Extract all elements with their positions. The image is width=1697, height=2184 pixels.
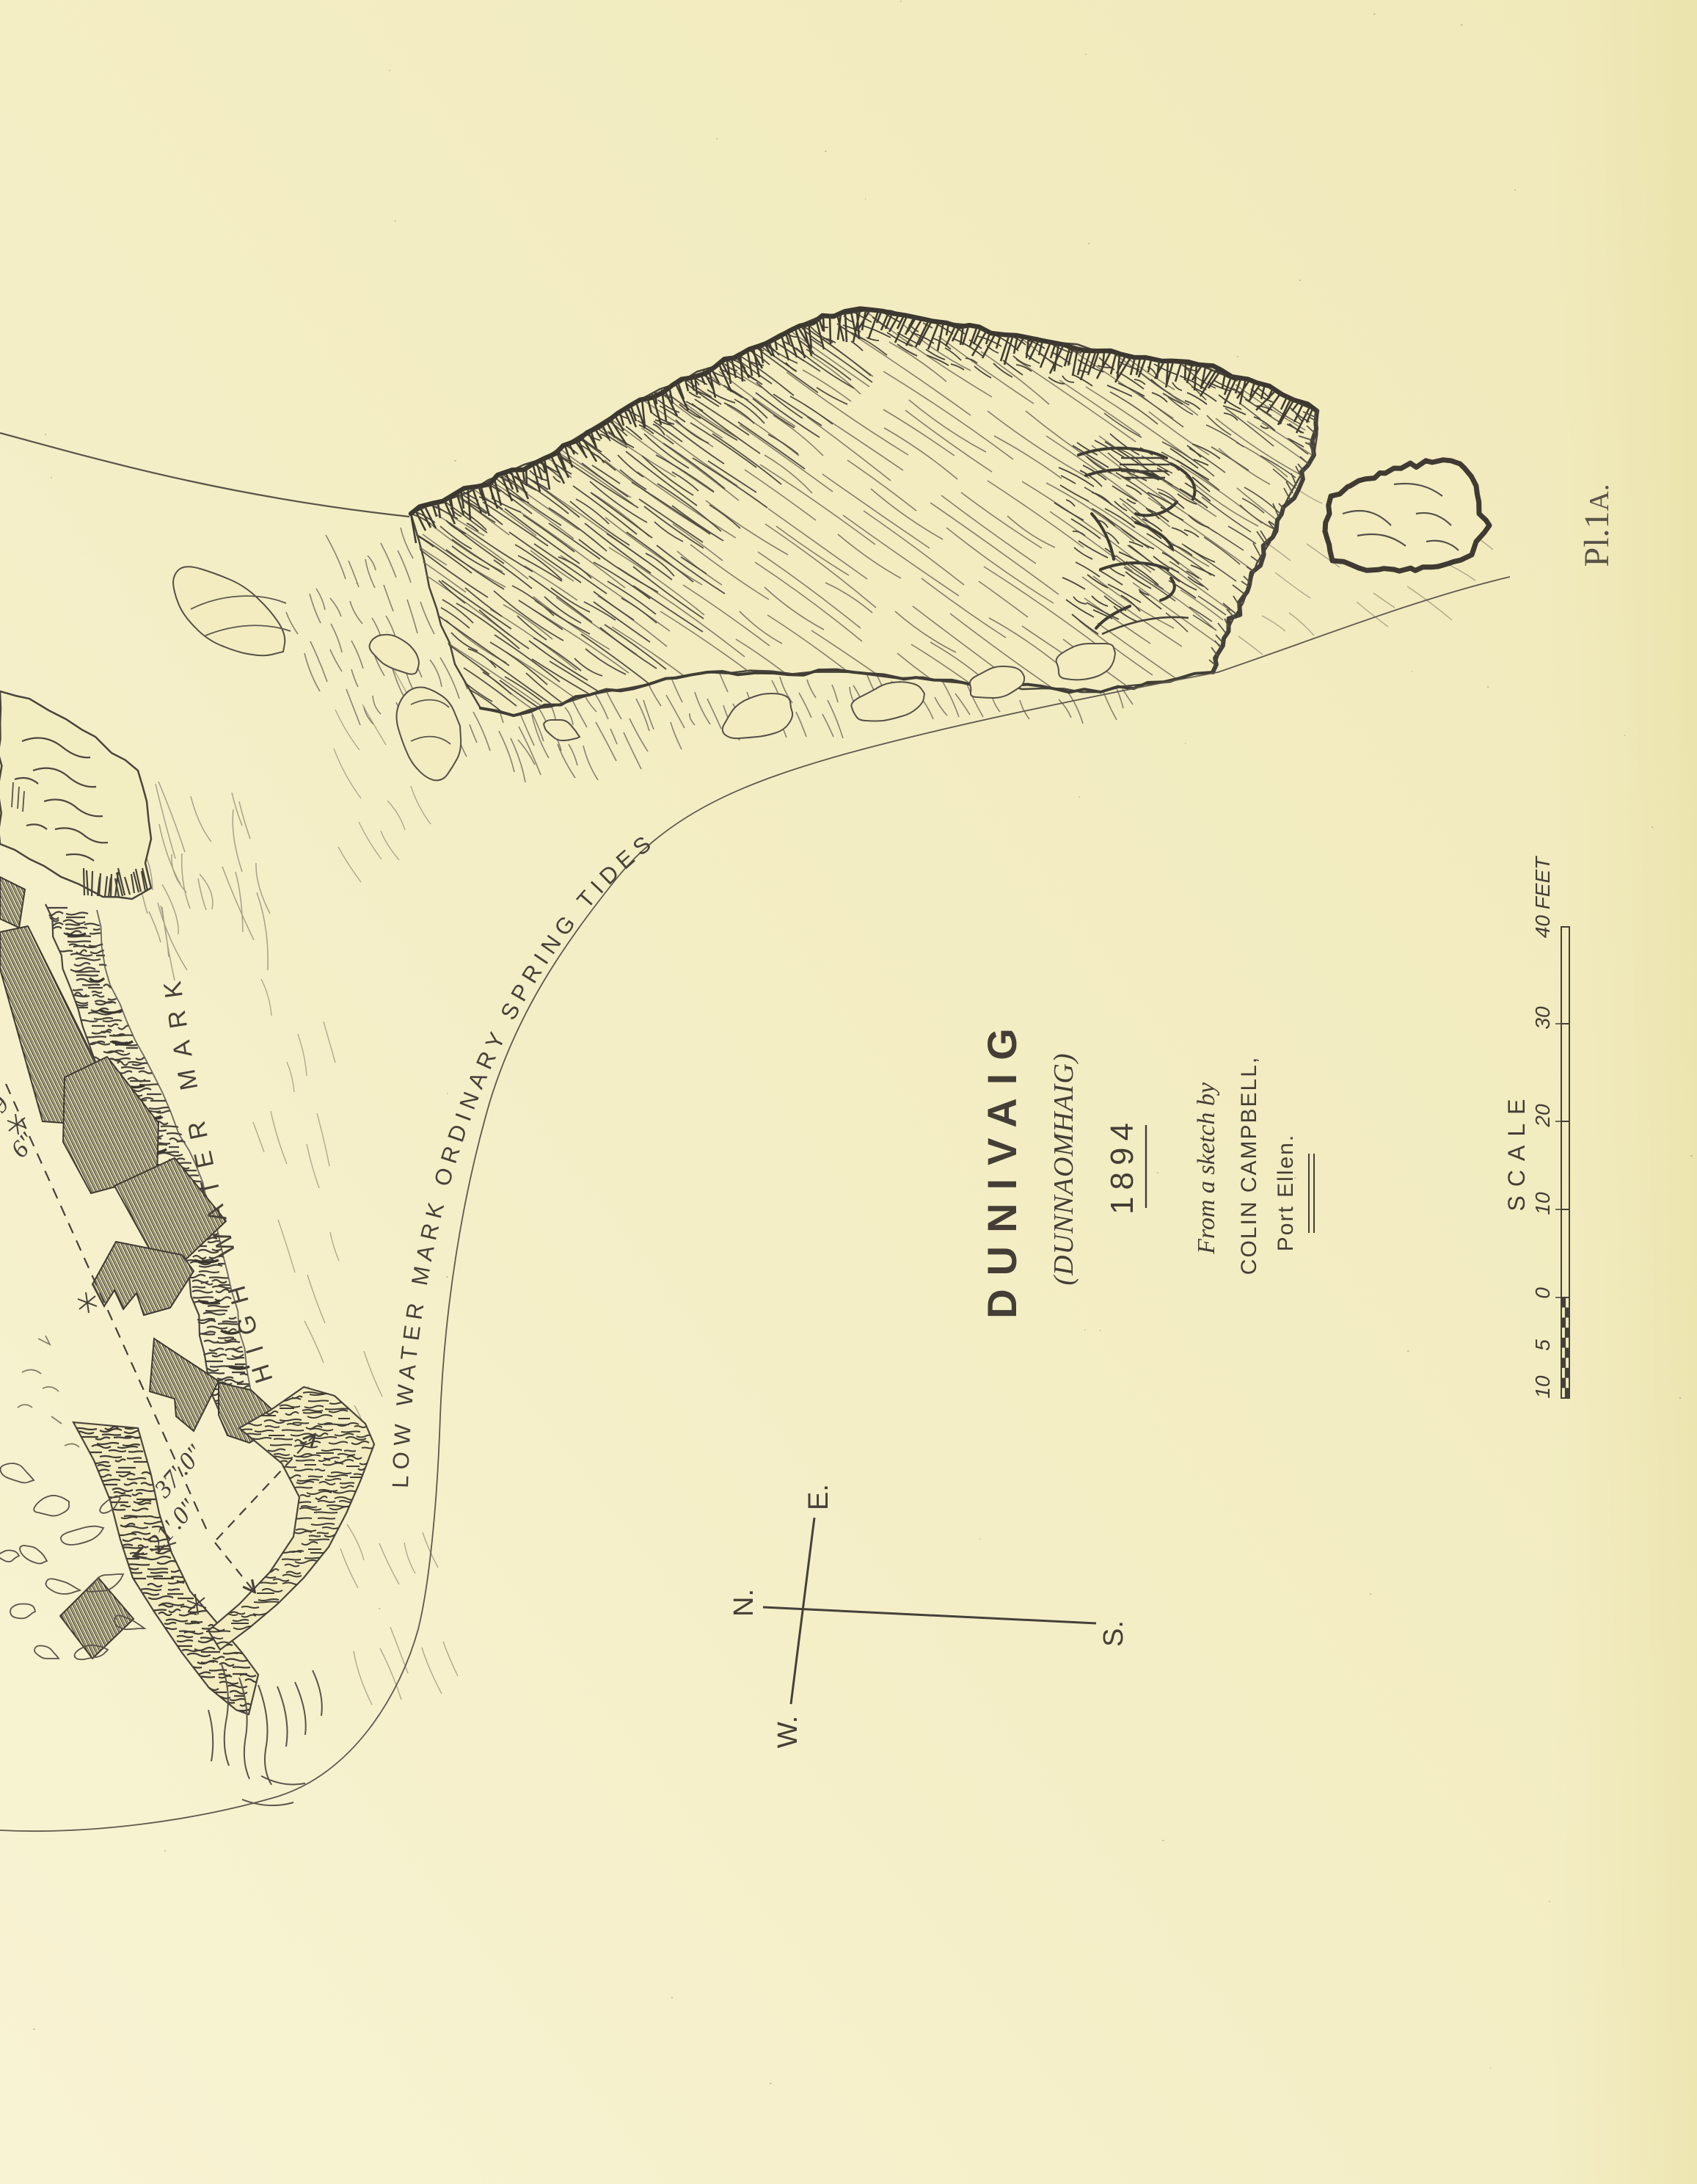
svg-text:W.: W. bbox=[773, 1716, 803, 1748]
svg-text:20: 20 bbox=[1531, 1104, 1554, 1128]
svg-text:COLIN CAMPBELL,: COLIN CAMPBELL, bbox=[1237, 1056, 1261, 1275]
svg-text:5: 5 bbox=[1531, 1339, 1554, 1351]
svg-text:DUNIVAIG: DUNIVAIG bbox=[979, 1015, 1025, 1319]
svg-text:10: 10 bbox=[1531, 1375, 1554, 1399]
svg-text:Port Ellen.: Port Ellen. bbox=[1274, 1134, 1298, 1251]
svg-text:40 FEET: 40 FEET bbox=[1531, 856, 1554, 938]
svg-text:E.: E. bbox=[803, 1484, 834, 1510]
svg-text:N.: N. bbox=[729, 1589, 759, 1617]
svg-text:From a sketch by: From a sketch by bbox=[1193, 1082, 1220, 1255]
svg-text:1894: 1894 bbox=[1104, 1116, 1140, 1215]
svg-text:30: 30 bbox=[1531, 1006, 1554, 1030]
svg-text:10: 10 bbox=[1531, 1192, 1554, 1215]
svg-text:0: 0 bbox=[1531, 1287, 1554, 1299]
svg-text:SCALE: SCALE bbox=[1503, 1091, 1530, 1212]
svg-text:S.: S. bbox=[1098, 1620, 1129, 1647]
svg-text:(DUNNAOMHAIG): (DUNNAOMHAIG) bbox=[1048, 1053, 1079, 1286]
